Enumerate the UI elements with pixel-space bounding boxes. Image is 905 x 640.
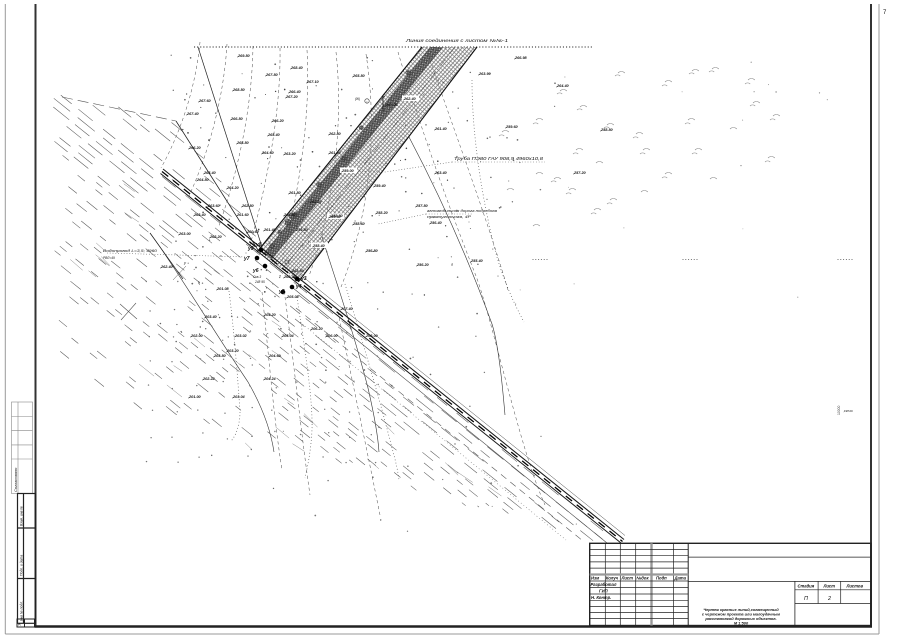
svg-text:,263.20: ,263.20 xyxy=(282,152,297,156)
svg-text:,266.20: ,266.20 xyxy=(270,119,285,123)
svg-text:,204.24: ,204.24 xyxy=(262,377,277,381)
svg-text:,265.40: ,265.40 xyxy=(266,133,281,137)
svg-text:,258.80: ,258.80 xyxy=(329,214,344,218)
svg-text:,203.04: ,203.04 xyxy=(231,395,246,399)
svg-text:РВЛ=49: РВЛ=49 xyxy=(103,256,115,260)
svg-text:,256.40: ,256.40 xyxy=(428,221,443,225)
svg-text:,264.80: ,264.80 xyxy=(195,178,210,182)
svg-text:,205.04: ,205.04 xyxy=(280,334,295,338)
svg-text:,256.80: ,256.80 xyxy=(364,249,379,253)
svg-text:Разработал: Разработал xyxy=(591,582,617,587)
svg-text:,256.20: ,256.20 xyxy=(415,263,430,267)
svg-text:,255.40: ,255.40 xyxy=(469,259,484,263)
svg-text:,264.20: ,264.20 xyxy=(225,186,240,190)
svg-text:,257.80: ,257.80 xyxy=(414,204,429,208)
svg-text:,264.40: ,264.40 xyxy=(555,84,570,88)
svg-text:,259.00: ,259.00 xyxy=(340,169,355,173)
svg-text:,262.40: ,262.40 xyxy=(402,97,417,101)
svg-text:Согласовано: Согласовано xyxy=(13,467,18,492)
svg-text:,205.08: ,205.08 xyxy=(285,295,300,299)
svg-text:,269.80: ,269.80 xyxy=(236,54,251,58)
svg-text:,263.60: ,263.60 xyxy=(206,204,221,208)
svg-text:,203.20: ,203.20 xyxy=(225,349,240,353)
svg-text:,258.80: ,258.80 xyxy=(599,128,614,132)
svg-text:,259.40: ,259.40 xyxy=(372,184,387,188)
svg-text:Подп. и дата: Подп. и дата xyxy=(20,555,24,576)
svg-text:,263.00: ,263.00 xyxy=(177,232,192,236)
svg-text:,201.00: ,201.00 xyxy=(187,395,202,399)
svg-text:у6: у6 xyxy=(252,268,259,274)
svg-text:Инв № подл.: Инв № подл. xyxy=(20,601,24,621)
svg-text:,261.60: ,261.60 xyxy=(235,213,250,217)
svg-text:,261.40: ,261.40 xyxy=(262,228,277,232)
svg-text:,262.60: ,262.60 xyxy=(290,269,305,273)
svg-text:,261.40: ,261.40 xyxy=(433,127,448,131)
svg-text:Лист: Лист xyxy=(823,584,836,589)
svg-text:Стадия: Стадия xyxy=(798,584,815,589)
svg-text:,259.60: ,259.60 xyxy=(504,125,519,129)
svg-text:248 95: 248 95 xyxy=(254,280,265,284)
svg-text:,262.40: ,262.40 xyxy=(159,265,174,269)
svg-text:автомобильная дорога подробная: автомобильная дорога подробная xyxy=(427,209,497,213)
svg-text:,203.80: ,203.80 xyxy=(212,354,227,358)
svg-text:10000: 10000 xyxy=(837,405,841,415)
svg-text:Труба ПЭ80 ГАУ 908,9 4960х10,8: Труба ПЭ80 ГАУ 908,9 4960х10,8 xyxy=(454,156,544,161)
svg-text:,265.40: ,265.40 xyxy=(202,171,217,175)
svg-text:,204.20: ,204.20 xyxy=(262,313,277,317)
svg-text:,206.00: ,206.00 xyxy=(324,334,339,338)
svg-text:у4: у4 xyxy=(295,284,302,290)
svg-text:,262.80: ,262.80 xyxy=(327,132,342,136)
svg-text:Взам. инв №: Взам. инв № xyxy=(20,506,24,526)
svg-text:,19П20: ,19П20 xyxy=(843,409,853,413)
svg-text:,268.80: ,268.80 xyxy=(231,88,246,92)
svg-text:,203.40: ,203.40 xyxy=(203,315,218,319)
svg-text:,266.20: ,266.20 xyxy=(187,146,202,150)
svg-text:,260.40: ,260.40 xyxy=(282,275,297,279)
svg-text:у8: у8 xyxy=(255,242,262,248)
svg-text:Дата: Дата xyxy=(674,575,687,580)
svg-text:,263.40: ,263.40 xyxy=(433,171,448,175)
svg-text:,265.80: ,265.80 xyxy=(351,74,366,78)
svg-text:,204.60: ,204.60 xyxy=(267,354,282,358)
svg-text:Водопровод L=3,5; 4960: Водопровод L=3,5; 4960 xyxy=(103,249,157,253)
svg-text:,262.20: ,262.20 xyxy=(208,235,223,239)
svg-text:,257.20: ,257.20 xyxy=(572,171,587,175)
svg-text:,206.20: ,206.20 xyxy=(309,327,324,331)
svg-text:,202.00: ,202.00 xyxy=(189,334,204,338)
svg-text:,258.60: ,258.60 xyxy=(351,222,366,226)
svg-text:,267.60: ,267.60 xyxy=(197,99,212,103)
svg-text:,266.40: ,266.40 xyxy=(287,90,302,94)
svg-text:прямоугольная, 4Р: прямоугольная, 4Р xyxy=(427,215,472,219)
svg-text:,267.80: ,267.80 xyxy=(264,73,279,77)
svg-text:,201.08: ,201.08 xyxy=(215,287,230,291)
svg-text:Изм: Изм xyxy=(591,575,600,580)
svg-text:Н. Контр.: Н. Контр. xyxy=(591,595,611,600)
svg-text:ГИП: ГИП xyxy=(599,589,609,594)
svg-text:,266.80: ,266.80 xyxy=(229,117,244,121)
svg-text:,258.20: ,258.20 xyxy=(374,211,389,215)
svg-text:№док: №док xyxy=(637,575,650,580)
svg-text:Линия соединения с листом №№-1: Линия соединения с листом №№-1 xyxy=(405,38,508,43)
svg-text:,260.80: ,260.80 xyxy=(282,213,297,217)
svg-text:у3: у3 xyxy=(300,276,307,282)
svg-text:,261.20: ,261.20 xyxy=(327,151,342,155)
svg-text:,267.20: ,267.20 xyxy=(284,95,299,99)
svg-text:,263.40: ,263.40 xyxy=(192,213,207,217)
svg-text:Лист: Лист xyxy=(621,575,634,580)
svg-text:,268.40: ,268.40 xyxy=(289,66,304,70)
svg-text:М 1:500: М 1:500 xyxy=(734,621,749,626)
svg-text:,260.60: ,260.60 xyxy=(245,230,260,234)
svg-text:Подп: Подп xyxy=(656,575,667,580)
svg-text:,267.40: ,267.40 xyxy=(185,112,200,116)
svg-text:(Ж): (Ж) xyxy=(355,97,360,101)
svg-text:,265.80: ,265.80 xyxy=(235,141,250,145)
svg-text:Скв.3: Скв.3 xyxy=(253,275,261,279)
svg-text:2: 2 xyxy=(827,596,831,602)
svg-text:,207.40: ,207.40 xyxy=(339,307,354,311)
svg-text:,259.80: ,259.80 xyxy=(294,228,309,232)
svg-text:,267.10: ,267.10 xyxy=(305,80,320,84)
svg-text:,258.40: ,258.40 xyxy=(311,244,326,248)
svg-text:,261.80: ,261.80 xyxy=(287,191,302,195)
svg-text:у7: у7 xyxy=(243,256,250,262)
svg-text:,203.02: ,203.02 xyxy=(233,334,248,338)
svg-text:А: А xyxy=(18,622,21,627)
svg-text:,263.99: ,263.99 xyxy=(477,72,492,76)
svg-text:,267.06: ,267.06 xyxy=(384,103,399,107)
svg-text:у9: у9 xyxy=(247,246,254,252)
svg-text:Колуч: Колуч xyxy=(606,575,619,580)
svg-text:,262.80: ,262.80 xyxy=(240,204,255,208)
svg-text:,202.22: ,202.22 xyxy=(201,377,216,381)
svg-text:П: П xyxy=(804,596,808,602)
svg-text:,264.60: ,264.60 xyxy=(260,151,275,155)
svg-text:Листов: Листов xyxy=(846,584,864,589)
svg-text:,266.98: ,266.98 xyxy=(513,56,528,60)
